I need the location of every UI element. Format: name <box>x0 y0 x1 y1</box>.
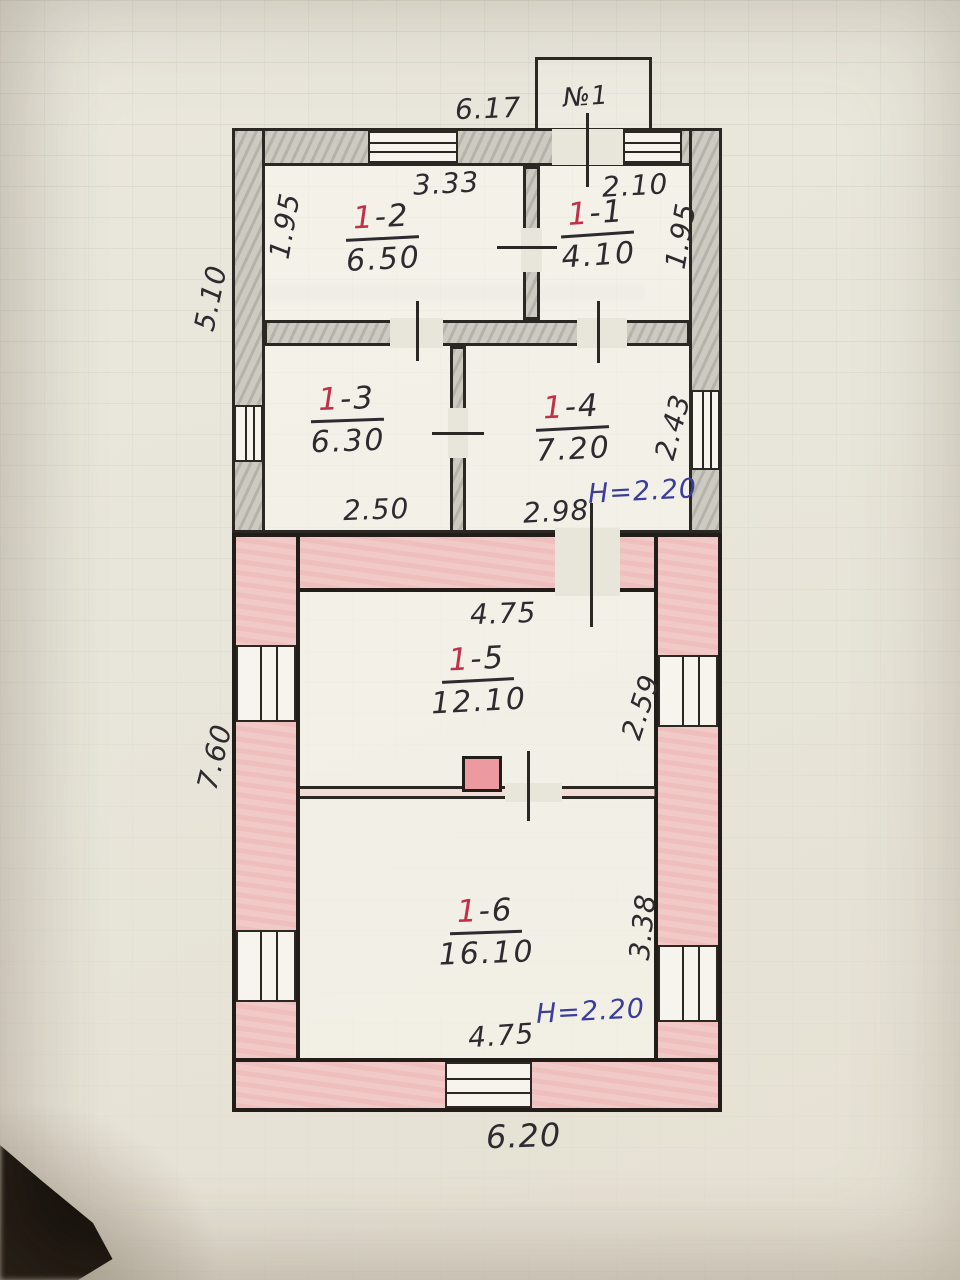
tick-door-room14 <box>597 301 600 363</box>
height-note-upper: H=2.20 <box>587 475 697 508</box>
outer-wall-left-upper <box>232 128 265 540</box>
dim-room13-bottom: 2.50 <box>343 495 410 525</box>
tick-door-room11 <box>497 246 557 249</box>
room-area: 7.20 <box>535 433 611 467</box>
dim-bottom-width: 6.20 <box>485 1119 561 1154</box>
room-id: 1-5 <box>440 642 515 684</box>
window-top-left <box>368 131 458 163</box>
lower-wall-top <box>232 533 722 592</box>
tick-door-room13 <box>416 301 419 361</box>
room-label-1-3: 1-3 6.30 <box>309 383 386 459</box>
room-id: 1-1 <box>559 196 634 239</box>
window-left-room16 <box>236 930 296 1002</box>
room-area: 6.30 <box>310 426 386 459</box>
photo-corner-object <box>0 1130 150 1280</box>
window-left-room15 <box>236 645 296 722</box>
room-area: 4.10 <box>561 238 638 273</box>
dim-top-width: 6.17 <box>455 94 522 124</box>
dim-room12-top: 3.33 <box>412 168 480 199</box>
door-opening-room14 <box>577 318 627 348</box>
room-id: 1-3 <box>310 383 384 424</box>
dim-room16-bottom: 4.75 <box>467 1020 535 1053</box>
porch-number-label: №1 <box>562 82 609 111</box>
room-label-1-5: 1-5 12.10 <box>428 642 528 720</box>
room-label-1-4: 1-4 7.20 <box>533 390 612 467</box>
room-label-1-2: 1-2 6.50 <box>343 200 422 277</box>
tick-door-porch <box>586 113 589 187</box>
room-id: 1-4 <box>534 390 609 432</box>
door-opening-room15 <box>555 528 620 596</box>
door-opening-room11 <box>521 228 542 272</box>
room-area: 6.50 <box>345 243 421 277</box>
lower-wall-left <box>232 533 300 1112</box>
window-right-room15 <box>658 655 718 727</box>
floor-plan-page: 6.17 №1 3.33 2.10 1.95 1.95 5.10 2.50 2.… <box>0 0 960 1280</box>
room-label-1-1: 1-1 4.10 <box>558 195 638 273</box>
room-area: 16.10 <box>438 937 535 970</box>
lower-wall-right <box>654 533 722 1112</box>
room-id: 1-6 <box>448 895 522 936</box>
window-left-upper <box>234 405 263 462</box>
dim-room16-right: 3.38 <box>626 893 661 962</box>
tick-door-room14-inner <box>432 432 484 435</box>
door-opening-room16 <box>505 783 562 802</box>
dim-left-outer-upper: 5.10 <box>191 263 232 334</box>
tick-door-room15 <box>590 503 593 627</box>
tick-door-room16 <box>527 751 530 821</box>
stove-flue-box <box>462 756 502 792</box>
room-id: 1-2 <box>344 200 419 242</box>
height-note-lower: H=2.20 <box>535 995 645 1028</box>
room-label-1-6: 1-6 16.10 <box>437 894 535 970</box>
dim-left-outer-lower: 7.60 <box>194 721 237 792</box>
window-right-room16 <box>658 945 718 1022</box>
dim-room15-top: 4.75 <box>470 599 537 629</box>
window-top-right <box>623 131 682 163</box>
window-bottom <box>445 1062 532 1108</box>
room-area: 12.10 <box>430 684 527 719</box>
dim-room14-bottom: 2.98 <box>522 496 590 527</box>
